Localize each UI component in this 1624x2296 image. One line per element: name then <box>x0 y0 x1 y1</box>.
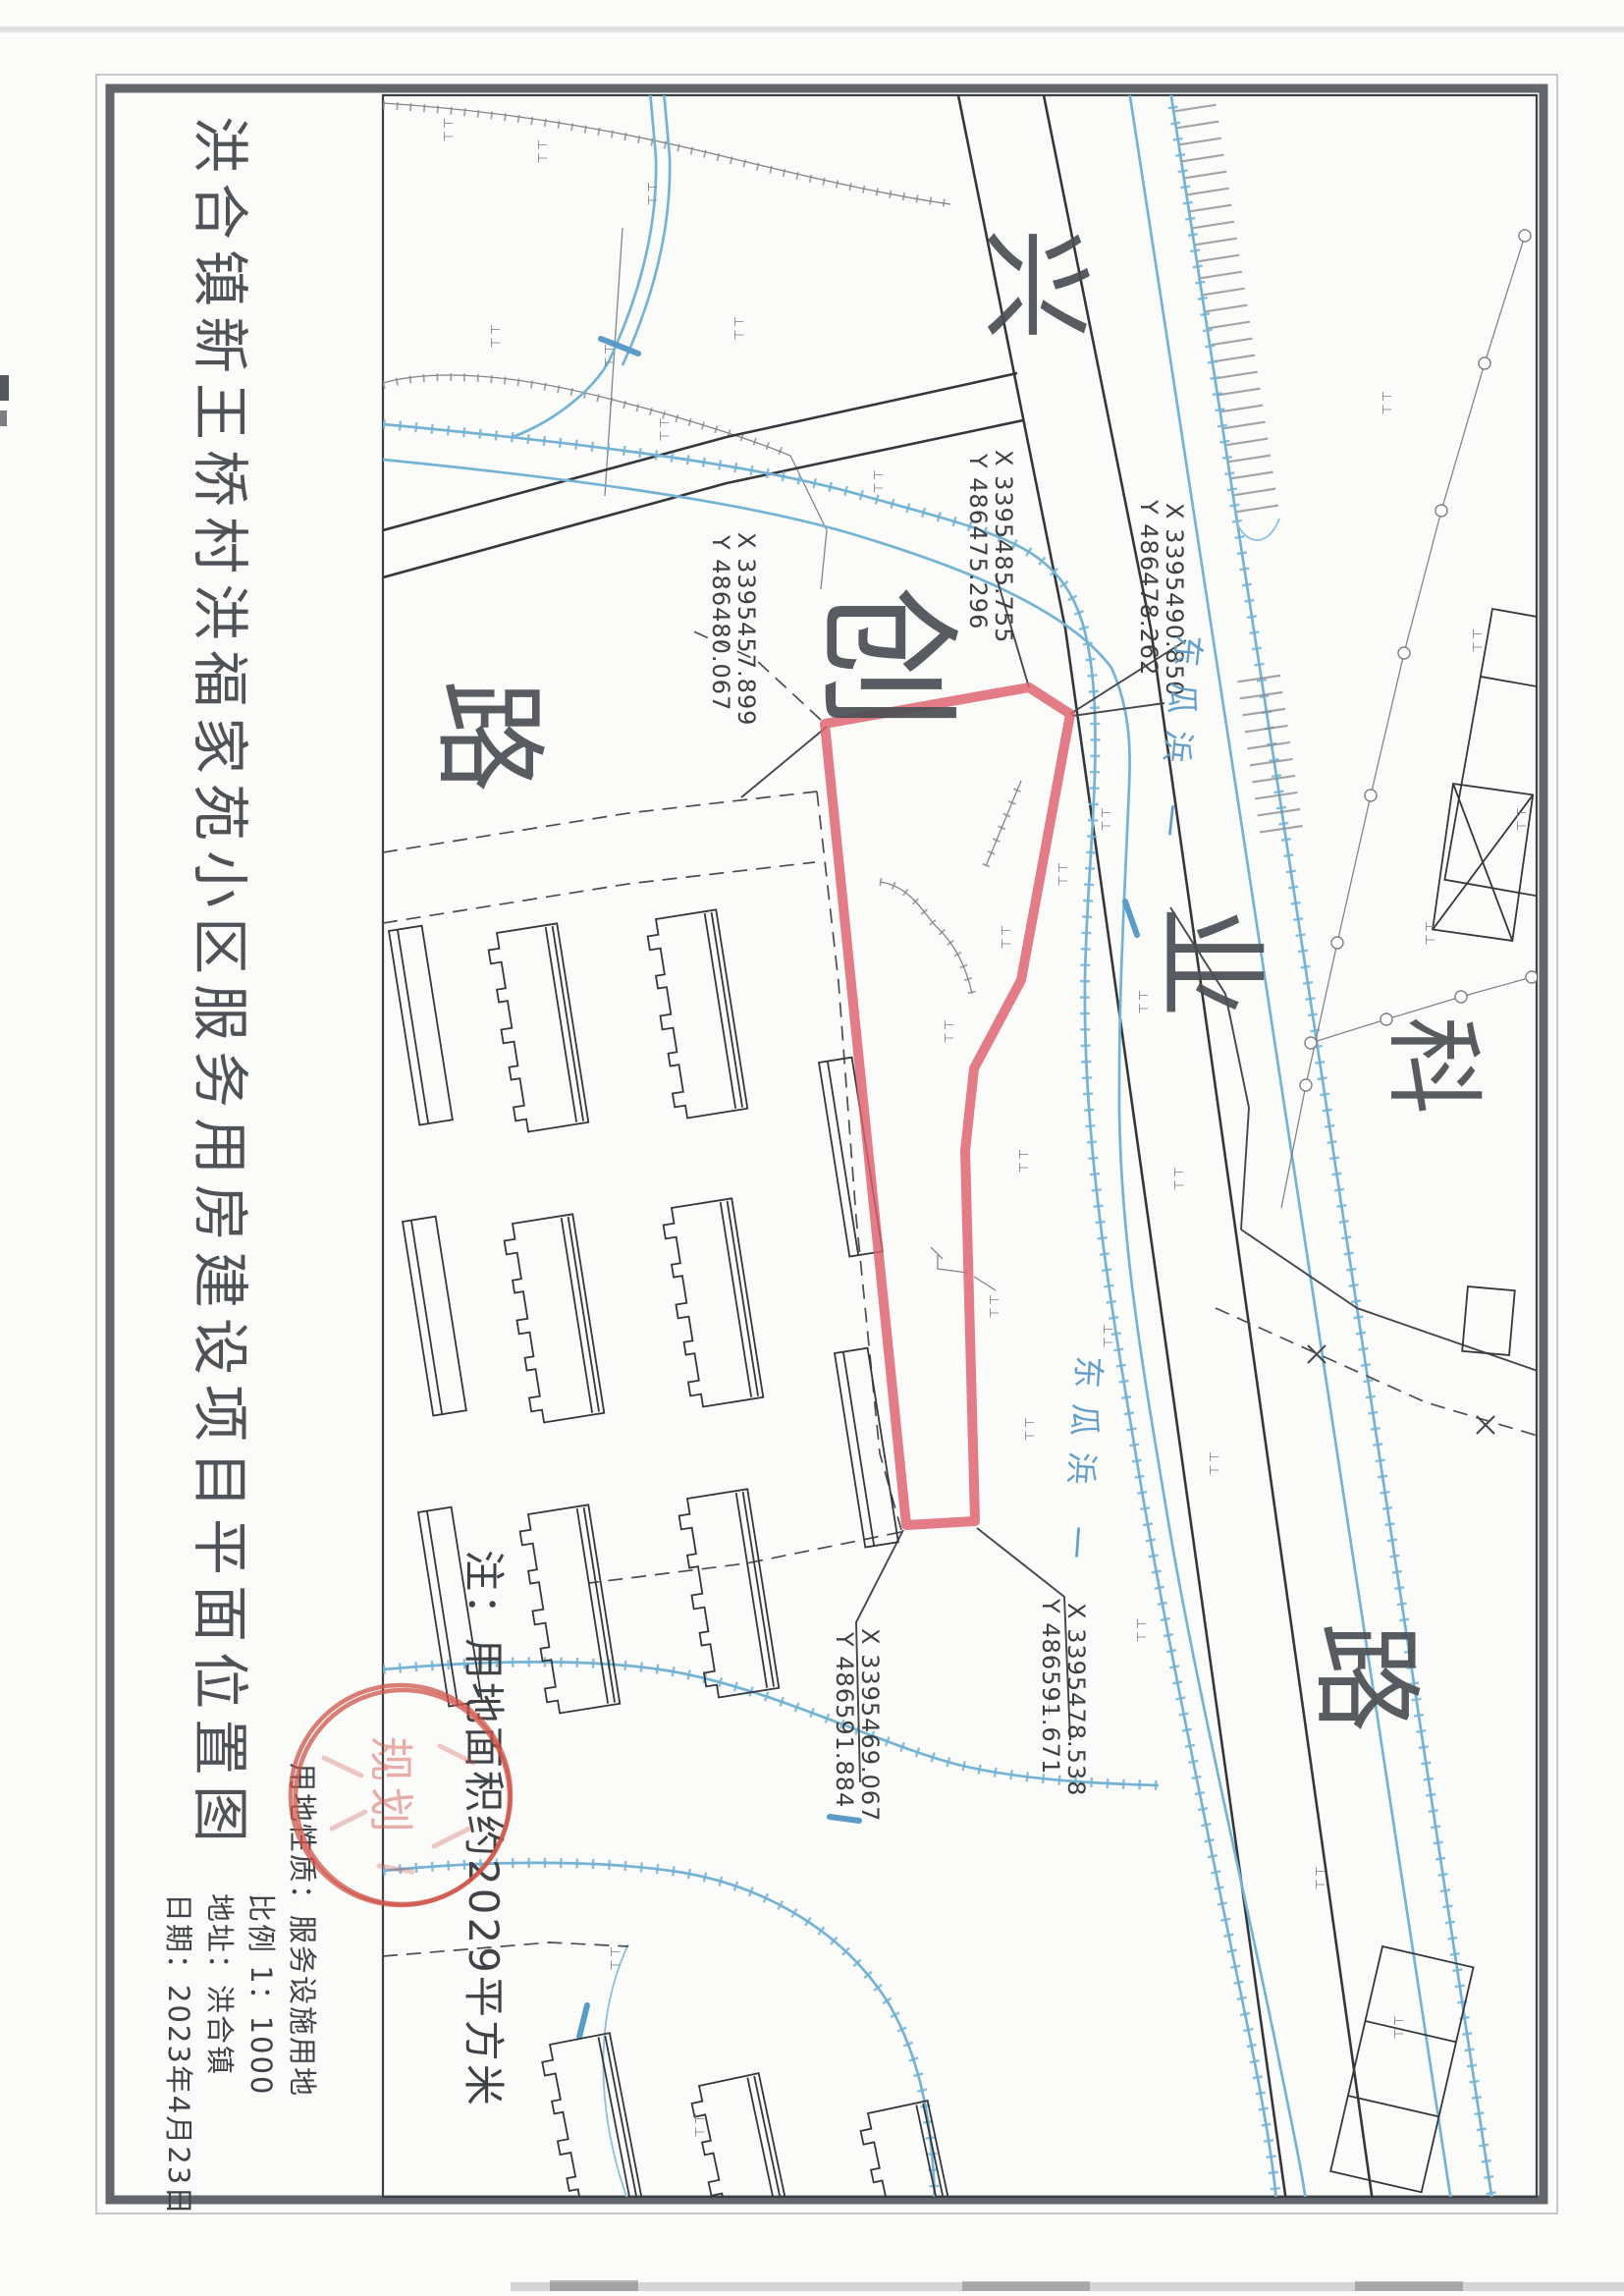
road-char-xing: 兴 <box>969 228 1101 341</box>
paddy-field-symbol: ⊥⊥ <box>556 2241 570 2268</box>
northwest-road <box>383 373 1023 577</box>
coord-label-x: X 3395469.067 <box>856 1628 884 1822</box>
paddy-field-symbol: ⊥⊥ <box>440 118 455 144</box>
coord-label-x: X 3395478.538 <box>1062 1603 1090 1796</box>
main-river <box>383 90 1306 2202</box>
paddy-field-symbol: ⊥⊥ <box>1206 1451 1220 1478</box>
info-date: 日期：2023年4月23日 <box>162 1893 195 2216</box>
coord-label-x: X 3395485.755 <box>990 450 1017 643</box>
paddy-field-symbol: ⊥⊥ <box>691 2113 706 2140</box>
road-char-ye: 业 <box>1143 905 1274 1018</box>
site-plan-map: ⊥⊥⊥⊥⊥⊥⊥⊥⊥⊥⊥⊥⊥⊥⊥⊥⊥⊥⊥⊥⊥⊥⊥⊥⊥⊥⊥⊥⊥⊥⊥⊥⊥⊥⊥⊥⊥⊥⊥⊥… <box>0 0 1624 2296</box>
paddy-field-symbol: ⊥⊥ <box>1422 921 1436 948</box>
project-parcel-outline <box>825 687 1070 1525</box>
coord-label-x: X 3395457.899 <box>732 532 760 726</box>
paddy-field-symbol: ⊥⊥ <box>644 182 659 208</box>
coord-label-y: Y 486591.884 <box>831 1631 858 1808</box>
paddy-field-symbol: ⊥⊥ <box>1100 1324 1114 1350</box>
main-road-xingye <box>957 90 1373 2202</box>
coord-label-y: Y 486480.067 <box>707 534 734 711</box>
parcel-leader-lines <box>741 574 1538 1782</box>
paddy-field-symbol: ⊥⊥ <box>1513 807 1528 834</box>
paddy-field-symbol: ⊥⊥ <box>656 417 671 444</box>
paddy-field-symbol: ⊥⊥ <box>1170 1167 1185 1193</box>
road-name-characters: 兴 创 业 科 路 路 <box>422 228 1490 1732</box>
paddy-field-symbol: ⊥⊥ <box>1312 1866 1326 1892</box>
paddy-field-symbol: ⊥⊥ <box>1469 629 1484 655</box>
paddy-field-symbol: ⊥⊥ <box>601 344 616 370</box>
road-char-lu: 路 <box>1301 1622 1429 1732</box>
paddy-field-symbol: ⊥⊥ <box>487 324 502 351</box>
road-char-ke: 科 <box>1376 1016 1490 1115</box>
paddy-field-symbol: ⊥⊥ <box>998 925 1012 952</box>
road-char-chuang: 创 <box>802 585 971 731</box>
coord-label-y: Y 486591.671 <box>1037 1598 1064 1775</box>
scanned-plan-document: ⊥⊥⊥⊥⊥⊥⊥⊥⊥⊥⊥⊥⊥⊥⊥⊥⊥⊥⊥⊥⊥⊥⊥⊥⊥⊥⊥⊥⊥⊥⊥⊥⊥⊥⊥⊥⊥⊥⊥⊥… <box>0 0 1624 2296</box>
paddy-field-symbol: ⊥⊥ <box>534 139 549 166</box>
paddy-field-symbol: ⊥⊥ <box>870 469 885 496</box>
drawing-title: 洪合镇新王桥村洪福家苑小区服务用房建设项目平面位置图 <box>187 116 253 1852</box>
river-label: 东瓜浜 一 <box>1055 1354 1108 1575</box>
info-scale: 比例 1：1000 <box>244 1893 278 2096</box>
stamp-text: 规划 <box>364 1736 417 1838</box>
paddy-field-symbol: ⊥⊥ <box>1021 1417 1036 1444</box>
field-embankment-lines <box>383 103 950 589</box>
dashed-boundaries <box>383 629 1538 1956</box>
east-canal-band <box>1129 90 1492 2202</box>
paddy-field-symbol: ⊥⊥ <box>1379 391 1393 417</box>
coord-label-y: Y 486478.262 <box>1135 499 1163 676</box>
info-address: 地址：洪合镇 <box>203 1893 237 2076</box>
road-char-lu: 路 <box>422 680 554 793</box>
paddy-field-symbol: ⊥⊥ <box>1015 1149 1030 1175</box>
paddy-field-symbol: ⊥⊥ <box>1133 1618 1148 1645</box>
paddy-field-symbol: ⊥⊥ <box>731 316 745 343</box>
paddy-field-symbol: ⊥⊥ <box>941 1019 955 1046</box>
paddy-field-symbol: ⊥⊥ <box>607 1946 622 1973</box>
paddy-field-symbol: ⊥⊥ <box>1390 2015 1405 2042</box>
paddy-field-symbol: ⊥⊥ <box>986 1294 1001 1321</box>
paddy-field-symbol: ⊥⊥ <box>1055 862 1069 889</box>
paddy-field-symbol: ⊥⊥ <box>1098 807 1112 834</box>
